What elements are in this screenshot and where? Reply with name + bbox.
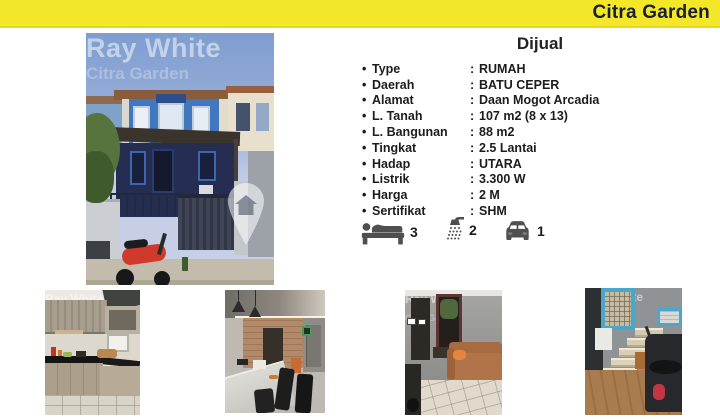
carport-feature: 1	[502, 220, 545, 242]
lower-cabinets	[45, 363, 103, 397]
potted-plant	[182, 257, 188, 271]
listing-details: Dijual • Type : RUMAH • Daerah : BATU CE…	[350, 34, 720, 219]
bathrooms-count: 2	[469, 222, 477, 238]
detail-row-daerah: • Daerah : BATU CEPER	[350, 77, 720, 93]
neighbor-window	[236, 103, 250, 131]
lamp-cord	[255, 290, 256, 306]
ground-window	[130, 151, 146, 185]
office-watermark: Citra Garden	[86, 64, 189, 83]
detail-value: BATU CEPER	[479, 78, 559, 92]
detail-label: L. Bangunan	[372, 125, 470, 139]
bedrooms-count: 3	[410, 224, 418, 240]
lattice-screen	[605, 292, 631, 326]
motorcycle-taillight	[653, 384, 665, 400]
detail-label: Alamat	[372, 93, 470, 107]
stroller-wheel	[407, 398, 419, 412]
red-motorcycle	[114, 233, 178, 285]
bullet: •	[362, 141, 372, 155]
upper-cabinets	[45, 300, 107, 334]
window-awning	[156, 94, 186, 103]
detail-row-alamat: • Alamat : Daan Mogot Arcadia	[350, 93, 720, 109]
bullet: •	[362, 78, 372, 92]
ground-window	[198, 151, 216, 181]
detail-label: Hadap	[372, 157, 470, 171]
motorcycle-seat	[649, 360, 682, 374]
separator: :	[470, 141, 479, 155]
lamp-cord	[238, 290, 239, 300]
listing-status-title: Dijual	[350, 34, 720, 54]
detail-label: Listrik	[372, 172, 470, 186]
motorcycle-wheel	[116, 269, 134, 285]
wall-frame	[302, 326, 312, 336]
detail-row-sertifikat: • Sertifikat : SHM	[350, 203, 720, 219]
detail-row-luas-bangunan: • L. Bangunan : 88 m2	[350, 124, 720, 140]
gallery-photo-living-room: Ray White Citra Garden	[405, 290, 502, 415]
neighbor-window	[256, 103, 269, 131]
bedrooms-feature: 3	[360, 219, 418, 245]
location-pin-watermark-icon	[228, 183, 264, 245]
white-appliance	[595, 328, 612, 350]
main-photo-house-exterior: Ray White Citra Garden	[86, 33, 274, 285]
detail-label: Harga	[372, 188, 470, 202]
detail-value: SHM	[479, 204, 507, 218]
orange-pillow	[453, 350, 466, 360]
detail-row-type: • Type : RUMAH	[350, 61, 720, 77]
separator: :	[470, 93, 479, 107]
detail-row-harga: • Harga : 2 M	[350, 187, 720, 203]
separator: :	[470, 78, 479, 92]
detail-value: 88 m2	[479, 125, 514, 139]
separator: :	[470, 125, 479, 139]
bullet: •	[362, 188, 372, 202]
separator: :	[470, 172, 479, 186]
bowl	[63, 352, 72, 357]
bullet: •	[362, 109, 372, 123]
detail-value: 3.300 W	[479, 172, 526, 186]
detail-label: Daerah	[372, 78, 470, 92]
tree	[86, 151, 114, 203]
detail-value: RUMAH	[479, 62, 526, 76]
gallery-photo-dining-room: Ray White	[225, 290, 325, 413]
detail-label: L. Tanah	[372, 109, 470, 123]
detail-value: Daan Mogot Arcadia	[479, 93, 599, 107]
bullet: •	[362, 172, 372, 186]
wall-picture	[407, 318, 416, 325]
separator: :	[470, 157, 479, 171]
detail-value: 2.5 Lantai	[479, 141, 537, 155]
bullet: •	[362, 157, 372, 171]
detail-value: 107 m2 (8 x 13)	[479, 109, 568, 123]
tile-floor	[45, 395, 140, 415]
detail-row-tingkat: • Tingkat : 2.5 Lantai	[350, 140, 720, 156]
gallery-photo-staircase: Ray White	[585, 288, 682, 415]
metal-gate	[178, 194, 234, 250]
brand-watermark: Ray White	[86, 33, 221, 63]
detail-value: 2 M	[479, 188, 500, 202]
plate	[269, 375, 278, 379]
bathrooms-feature: 2	[446, 216, 477, 244]
bullet: •	[362, 93, 372, 107]
carport-count: 1	[537, 223, 545, 239]
bullet: •	[362, 125, 372, 139]
bullet: •	[362, 62, 372, 76]
blue-framed-vent	[657, 308, 682, 326]
countertop	[45, 356, 105, 363]
dining-chair	[295, 373, 314, 413]
car-icon	[502, 220, 533, 242]
dining-chair	[254, 388, 275, 413]
bed-icon	[360, 219, 406, 245]
glass-cabinet-door	[109, 310, 136, 330]
tissue-box	[253, 360, 266, 369]
table-item	[237, 359, 248, 365]
property-flyer: Citra Garden	[0, 0, 720, 420]
jar	[58, 350, 62, 356]
detail-row-luas-tanah: • L. Tanah : 107 m2 (8 x 13)	[350, 108, 720, 124]
baskets	[97, 349, 117, 358]
greenery-view	[440, 299, 458, 319]
shower-icon	[446, 216, 465, 244]
detail-row-listrik: • Listrik : 3.300 W	[350, 172, 720, 188]
detail-row-hadap: • Hadap : UTARA	[350, 156, 720, 172]
office-title: Citra Garden	[593, 2, 711, 24]
bullet: •	[362, 204, 372, 218]
front-door	[152, 149, 174, 193]
kettle	[51, 347, 56, 356]
separator: :	[470, 188, 479, 202]
ac-unit	[199, 185, 213, 194]
dark-door	[411, 298, 430, 360]
detail-label: Tingkat	[372, 141, 470, 155]
header-bar: Citra Garden	[0, 0, 720, 28]
separator: :	[470, 62, 479, 76]
detail-label: Type	[372, 62, 470, 76]
pot	[76, 351, 86, 357]
wall-picture	[418, 319, 426, 325]
motorcycle-wheel	[154, 271, 170, 285]
lower-cabinets	[100, 366, 140, 395]
detail-value: UTARA	[479, 157, 522, 171]
gallery-photo-kitchen: Ray White	[45, 290, 140, 415]
separator: :	[470, 109, 479, 123]
